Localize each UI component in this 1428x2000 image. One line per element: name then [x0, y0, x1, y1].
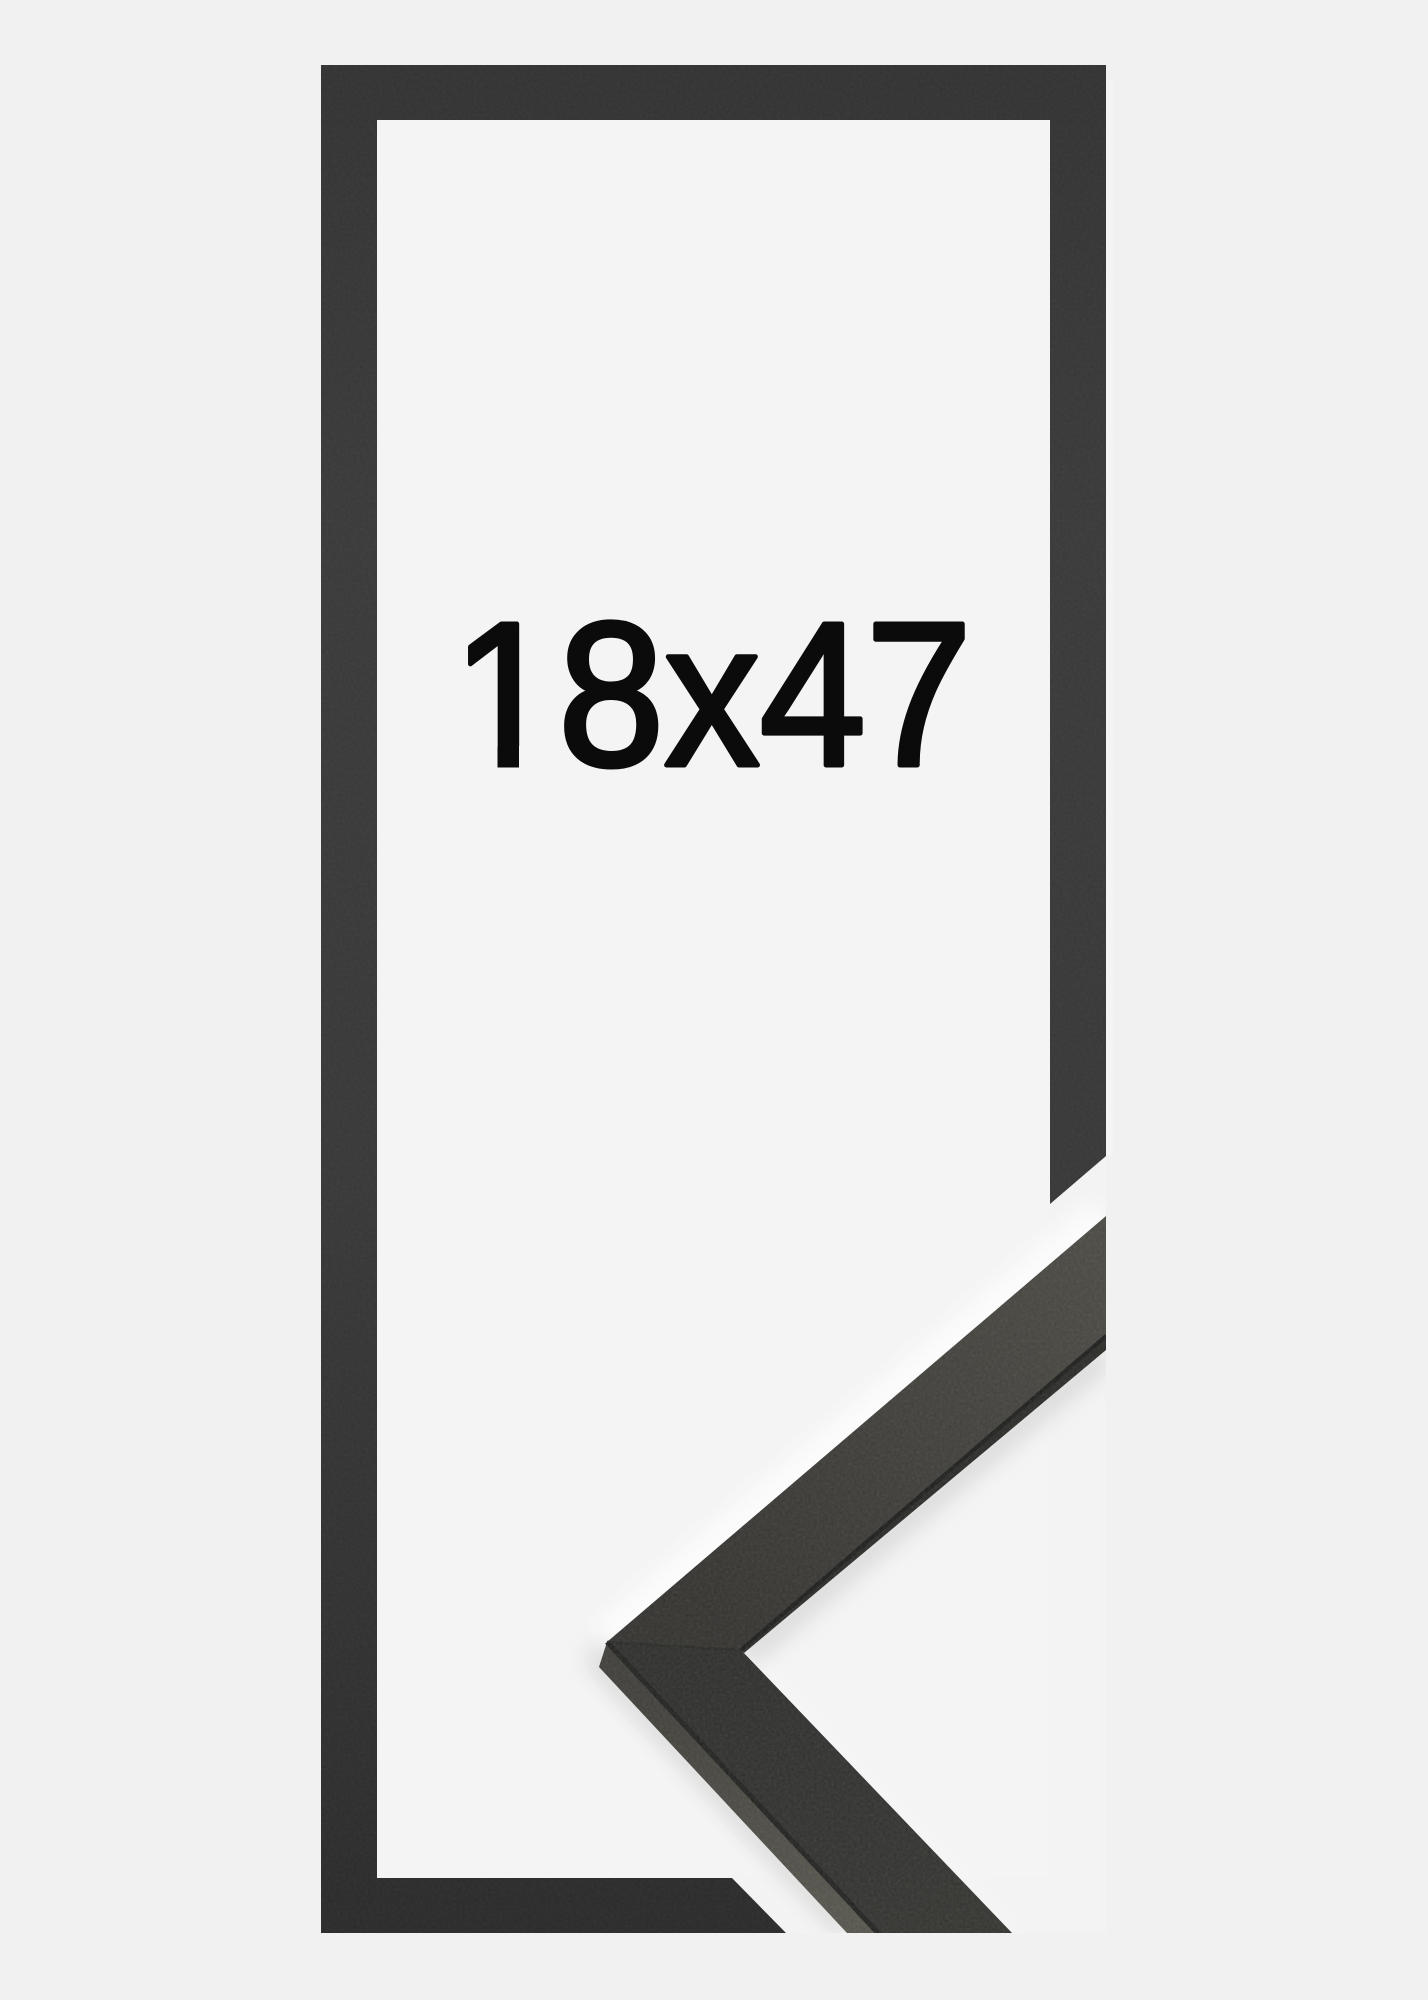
svg-text:18x47: 18x47	[452, 580, 972, 809]
